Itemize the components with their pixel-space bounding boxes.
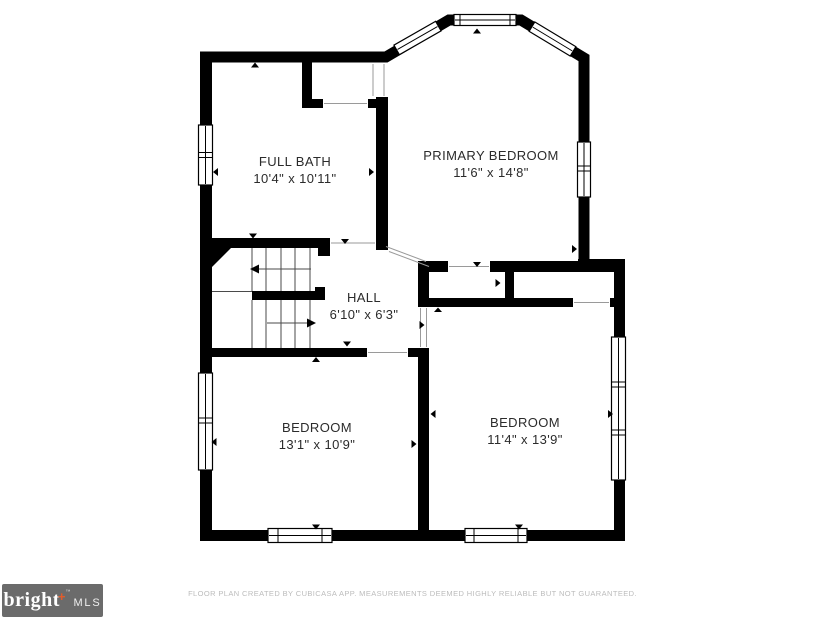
window-icon [465,529,527,543]
disclaimer-text: FLOOR PLAN CREATED BY CUBICASA APP. MEAS… [0,589,825,598]
room-name: PRIMARY BEDROOM [423,147,559,164]
window-icon [199,373,213,470]
logo-suffix-text: MLS [73,597,101,609]
room-dimensions: 10'4" x 10'11" [253,170,336,187]
room-label-hall: HALL 6'10" x 6'3" [330,289,399,323]
window-icon [394,21,441,54]
room-dimensions: 13'1" x 10'9" [279,436,356,453]
window-icon [529,22,576,56]
window-icon [578,142,591,197]
room-dimensions: 11'6" x 14'8" [423,164,559,181]
room-name: FULL BATH [253,153,336,170]
room-dimensions: 11'4" x 13'9" [487,431,563,448]
window-icons [199,15,626,543]
room-name: BEDROOM [279,419,356,436]
window-icon [268,529,332,543]
walls [200,20,625,541]
room-label-primary-bedroom: PRIMARY BEDROOM 11'6" x 14'8" [423,147,559,181]
window-icon [199,125,213,185]
room-label-full-bath: FULL BATH 10'4" x 10'11" [253,153,336,187]
floorplan-drawing [0,0,825,619]
room-name: HALL [330,289,399,306]
room-dimensions: 6'10" x 6'3" [330,306,399,323]
window-icon [612,337,626,480]
room-label-bedroom-right: BEDROOM 11'4" x 13'9" [487,414,563,448]
window-icon [454,15,516,26]
door-markers [212,29,614,530]
floorplan-page: FULL BATH 10'4" x 10'11" PRIMARY BEDROOM… [0,0,825,619]
stair-arrow-down [267,319,316,328]
room-label-bedroom-left: BEDROOM 13'1" x 10'9" [279,419,356,453]
room-name: BEDROOM [487,414,563,431]
